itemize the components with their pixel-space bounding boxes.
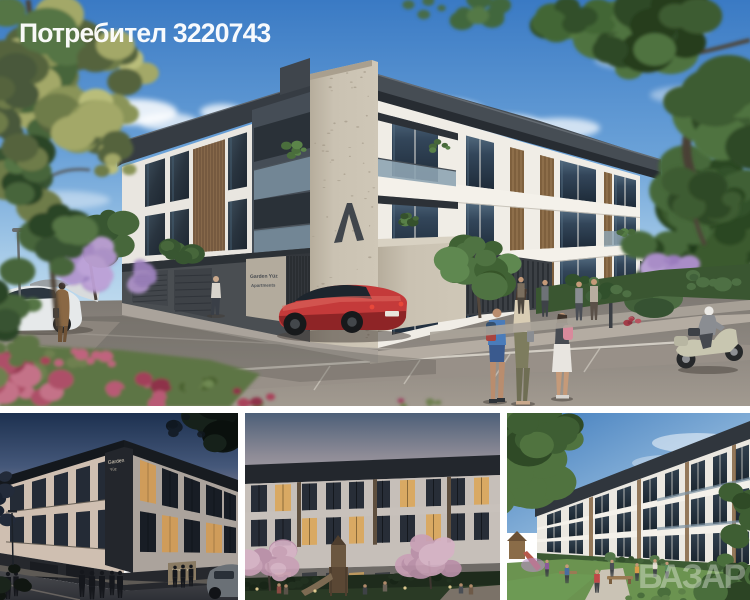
svg-text:БАЗАР: БАЗАР (638, 558, 746, 596)
svg-text:Garden Yüz: Garden Yüz (250, 274, 278, 280)
svg-text:Yüz: Yüz (109, 466, 117, 472)
svg-text:Потребител 3220743: Потребител 3220743 (19, 18, 271, 48)
svg-text:Apartments: Apartments (251, 283, 276, 288)
